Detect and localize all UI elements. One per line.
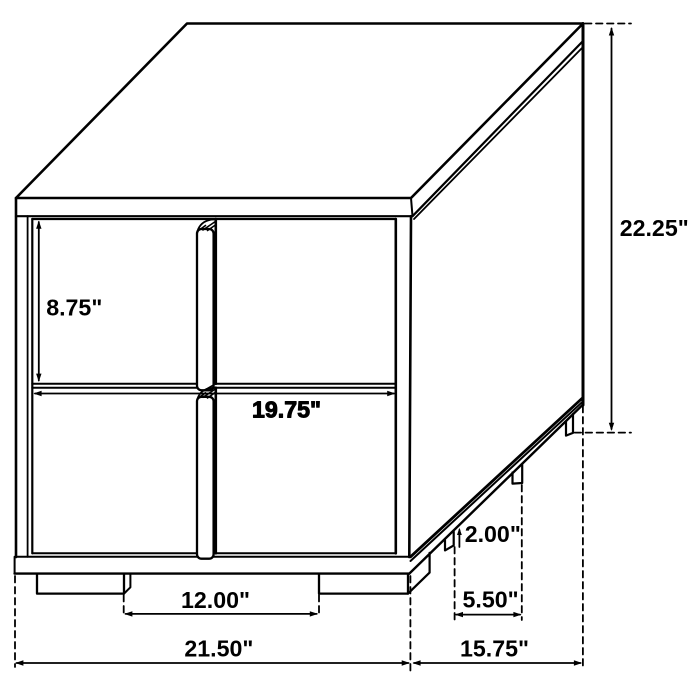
svg-text:8.75": 8.75" — [46, 295, 102, 321]
svg-text:5.50": 5.50" — [463, 587, 519, 613]
svg-text:21.50": 21.50" — [184, 636, 253, 662]
svg-text:2.00": 2.00" — [465, 521, 521, 547]
svg-text:15.75": 15.75" — [460, 636, 529, 662]
svg-text:12.00": 12.00" — [181, 587, 250, 613]
svg-text:19.75": 19.75" — [252, 396, 321, 422]
svg-text:22.25": 22.25" — [620, 215, 689, 241]
